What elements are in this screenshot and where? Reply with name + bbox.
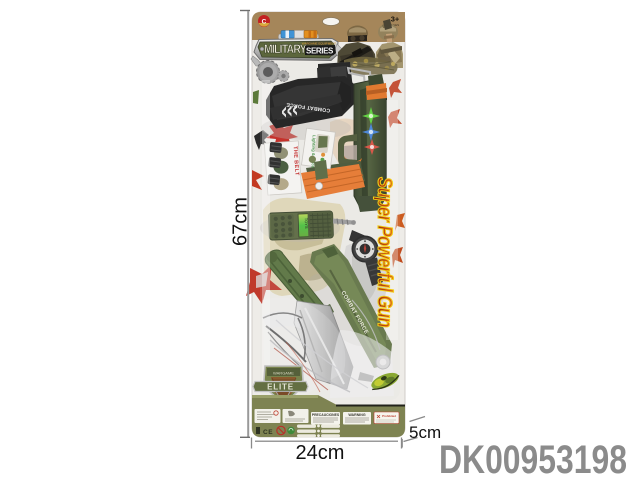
svg-text:Super Powerful Gun: Super Powerful Gun [373,177,396,327]
svg-text:WARGAME: WARGAME [273,371,294,376]
svg-text:C: C [262,19,267,26]
svg-text:DK00953198: DK00953198 [439,438,627,480]
svg-text:ELITE: ELITE [267,383,294,392]
svg-text:67cm: 67cm [230,197,252,246]
svg-text:MILITARY: MILITARY [264,44,307,56]
svg-text:Prohibited: Prohibited [382,414,396,418]
svg-text:24cm: 24cm [296,442,345,464]
svg-text:PRECAUCIONES: PRECAUCIONES [312,413,340,417]
svg-text:CE: CE [263,429,273,436]
svg-text:SERIES: SERIES [306,46,334,56]
svg-text:WARNING: WARNING [348,413,366,417]
svg-text:5cm: 5cm [409,423,441,442]
